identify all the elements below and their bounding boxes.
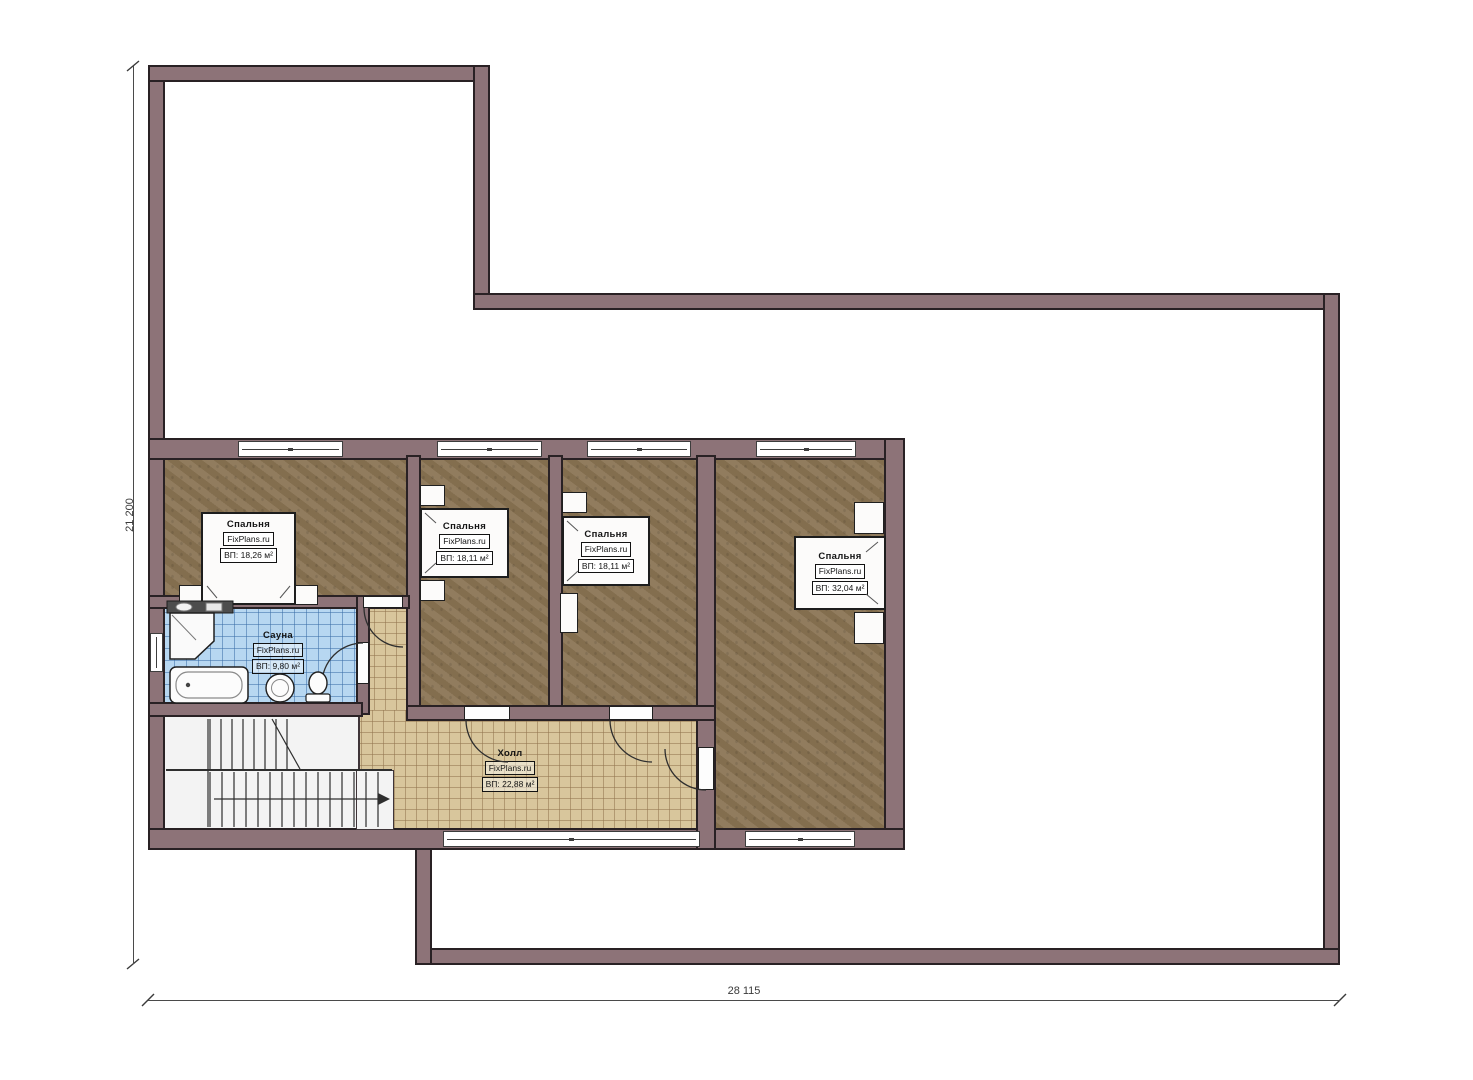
room-label-sauna: Сауна FixPlans.ru ВП: 9,80 м² — [238, 630, 318, 674]
dimension-width-label: 28 115 — [712, 985, 776, 997]
stair-landing-overhang — [356, 770, 394, 830]
window-bedroom-2 — [437, 441, 542, 457]
room-label-bedroom-1: Спальня FixPlans.ru ВП: 18,26 м² — [220, 519, 277, 563]
bed-bedroom-1: Спальня FixPlans.ru ВП: 18,26 м² — [201, 512, 296, 605]
door-bedroom-3 — [609, 706, 653, 720]
room-name: Спальня — [584, 529, 627, 540]
bed-bedroom-2: Спальня FixPlans.ru ВП: 18,11 м² — [420, 508, 509, 578]
window-hall-bottom — [443, 831, 700, 847]
room-label-bedroom-3: Спальня FixPlans.ru ВП: 18,11 м² — [578, 529, 634, 573]
outer-wall-bottom — [415, 948, 1340, 965]
watermark: FixPlans.ru — [485, 761, 536, 775]
nightstand — [420, 580, 445, 601]
bed-bedroom-3: Спальня FixPlans.ru ВП: 18,11 м² — [562, 516, 650, 586]
floor-plan-canvas: Спальня FixPlans.ru ВП: 18,26 м² Спальня… — [0, 0, 1473, 1080]
room-name: Спальня — [227, 519, 270, 530]
wall-hall-top — [406, 705, 716, 721]
door-bedroom-2 — [464, 706, 510, 720]
stairwell-floor — [150, 710, 360, 835]
building-wall-right — [884, 438, 905, 850]
window-sauna-left — [150, 633, 163, 672]
door-bedroom-1 — [363, 596, 403, 608]
room-label-bedroom-4: Спальня FixPlans.ru ВП: 32,04 м² — [812, 551, 869, 595]
room-name: Спальня — [443, 521, 486, 532]
window-bedroom-3 — [587, 441, 691, 457]
room-label-hall: Холл FixPlans.ru ВП: 22,88 м² — [466, 748, 554, 792]
watermark: FixPlans.ru — [223, 532, 274, 546]
dimension-line-bottom — [148, 1000, 1340, 1001]
outer-wall-notch — [473, 65, 490, 310]
window-bedroom-1 — [238, 441, 343, 457]
watermark: FixPlans.ru — [581, 542, 632, 556]
watermark: FixPlans.ru — [815, 564, 866, 578]
wall-bedroom1-bedroom2 — [406, 455, 421, 712]
nightstand — [854, 612, 884, 644]
room-area: ВП: 18,11 м² — [578, 559, 634, 573]
wall-bedroom2-bedroom3 — [548, 455, 563, 712]
room-area: ВП: 18,26 м² — [220, 548, 277, 562]
room-area: ВП: 9,80 м² — [252, 659, 304, 673]
nightstand — [560, 593, 578, 633]
nightstand — [420, 485, 445, 506]
nightstand — [179, 585, 202, 605]
outer-wall-stub — [415, 846, 432, 965]
bed-bedroom-4: Спальня FixPlans.ru ВП: 32,04 м² — [794, 536, 886, 610]
room-name: Холл — [497, 748, 522, 759]
wall-stairs-top — [148, 702, 363, 717]
room-name: Спальня — [818, 551, 861, 562]
room-label-bedroom-2: Спальня FixPlans.ru ВП: 18,11 м² — [436, 521, 492, 565]
room-area: ВП: 22,88 м² — [482, 777, 539, 791]
room-area: ВП: 32,04 м² — [812, 581, 869, 595]
nightstand — [854, 502, 884, 534]
outer-wall-middle — [473, 293, 1340, 310]
watermark: FixPlans.ru — [253, 643, 304, 657]
watermark: FixPlans.ru — [439, 534, 490, 548]
window-bedroom-4-bottom — [745, 831, 855, 847]
outer-wall-right — [1323, 293, 1340, 965]
nightstand — [295, 585, 318, 605]
outer-wall-top — [148, 65, 490, 82]
door-sauna — [357, 642, 369, 684]
room-name: Сауна — [263, 630, 293, 641]
nightstand — [562, 492, 587, 513]
door-bedroom-4 — [698, 747, 714, 790]
wall-bedroom3-bedroom4 — [696, 455, 716, 850]
window-bedroom-4-top — [756, 441, 856, 457]
dimension-height-label: 21 200 — [124, 483, 136, 547]
room-area: ВП: 18,11 м² — [436, 551, 492, 565]
